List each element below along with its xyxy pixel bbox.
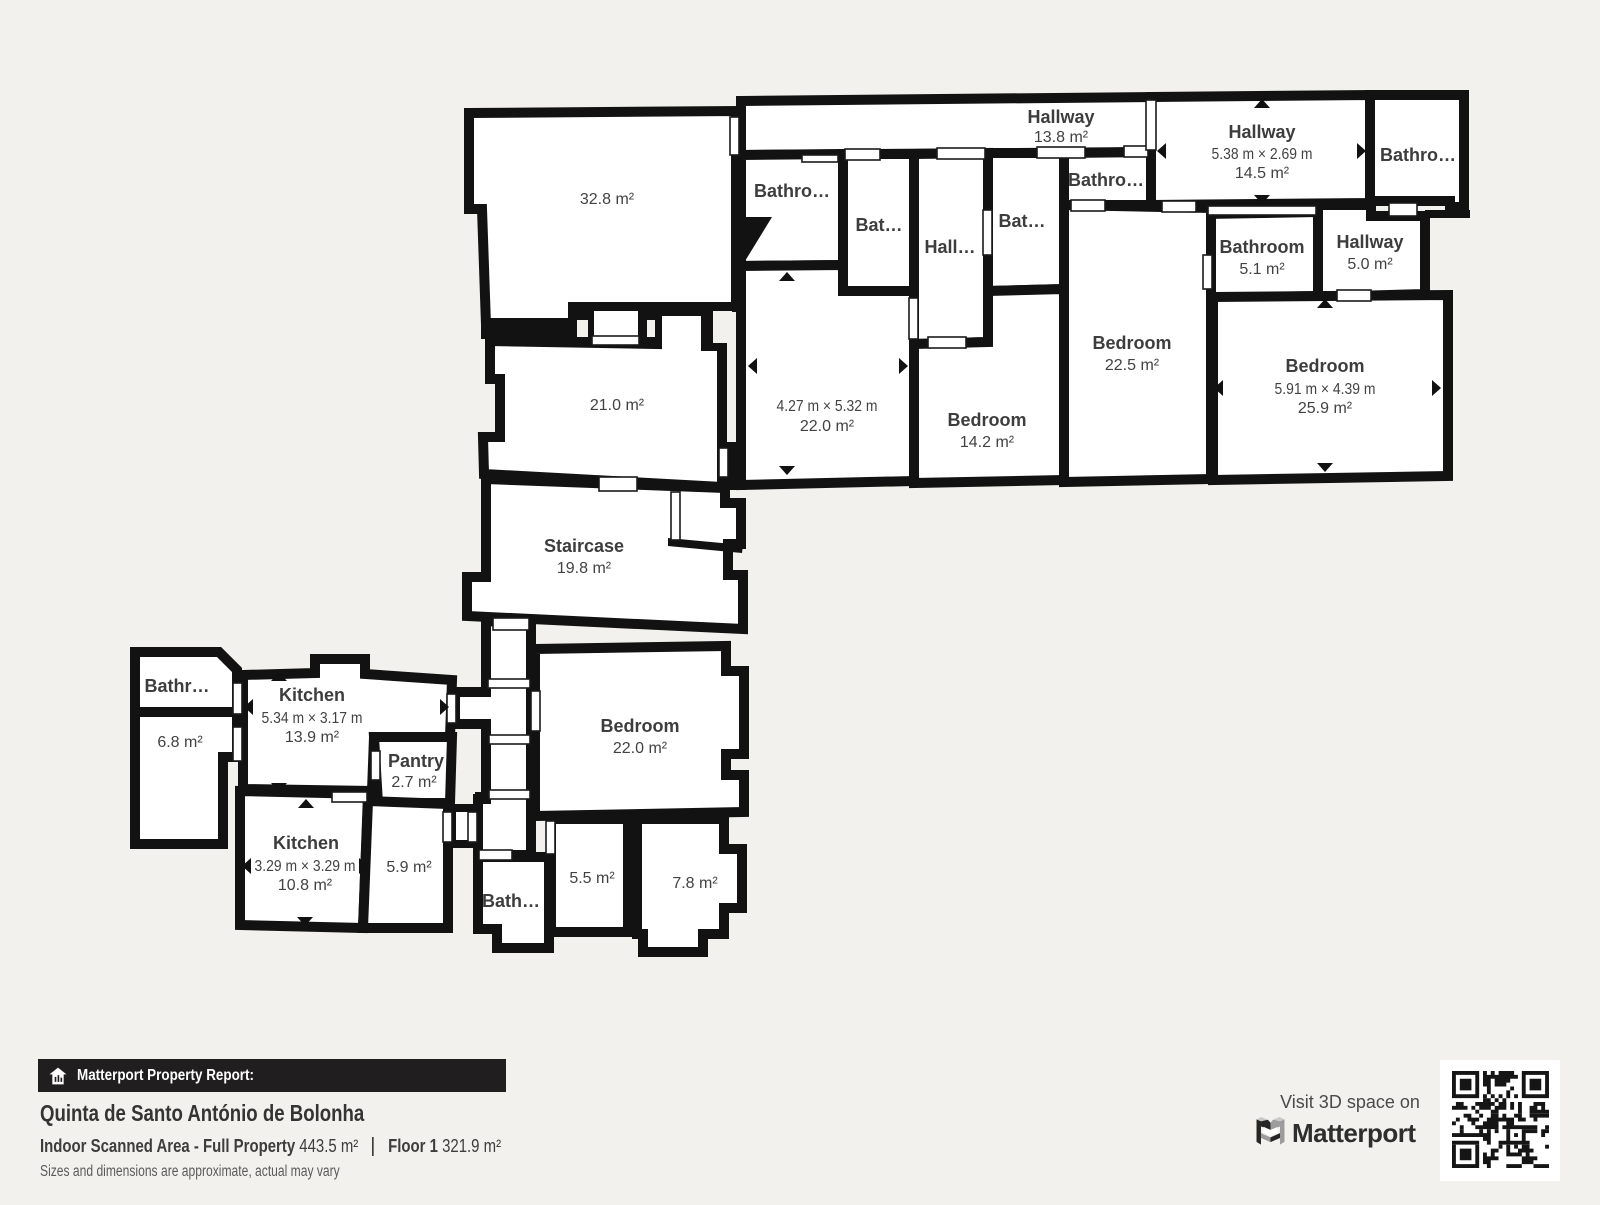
svg-text:Bathr…: Bathr…	[144, 676, 209, 696]
svg-text:Hallway: Hallway	[1228, 122, 1295, 142]
svg-text:Hallway: Hallway	[1027, 107, 1094, 127]
svg-text:Bat…: Bat…	[855, 215, 902, 235]
svg-text:21.0 m²: 21.0 m²	[590, 397, 645, 414]
svg-text:Hallway: Hallway	[1336, 232, 1403, 252]
svg-text:Staircase: Staircase	[544, 536, 624, 556]
svg-text:Bath…: Bath…	[482, 891, 540, 911]
svg-text:22.0 m²: 22.0 m²	[800, 418, 855, 435]
svg-text:5.9 m²: 5.9 m²	[386, 859, 432, 876]
svg-text:Bathro…: Bathro…	[754, 181, 830, 201]
svg-text:Bedroom: Bedroom	[1092, 333, 1171, 353]
svg-text:19.8 m²: 19.8 m²	[557, 560, 612, 577]
svg-text:Bathroom: Bathroom	[1220, 237, 1305, 257]
svg-text:5.1 m²: 5.1 m²	[1239, 261, 1285, 278]
svg-text:14.2 m²: 14.2 m²	[960, 434, 1015, 451]
svg-text:2.7 m²: 2.7 m²	[391, 774, 437, 791]
svg-text:Bedroom: Bedroom	[947, 410, 1026, 430]
svg-text:3.29 m × 3.29 m: 3.29 m × 3.29 m	[255, 858, 356, 875]
svg-text:14.5 m²: 14.5 m²	[1235, 165, 1290, 182]
svg-text:5.91 m × 4.39 m: 5.91 m × 4.39 m	[1275, 381, 1376, 398]
svg-text:Bat…: Bat…	[998, 211, 1045, 231]
svg-text:22.0 m²: 22.0 m²	[613, 740, 668, 757]
svg-text:Bathro…: Bathro…	[1068, 170, 1144, 190]
svg-text:Bedroom: Bedroom	[1285, 356, 1364, 376]
svg-text:7.8 m²: 7.8 m²	[672, 875, 718, 892]
svg-text:25.9 m²: 25.9 m²	[1298, 400, 1353, 417]
svg-text:4.27 m × 5.32 m: 4.27 m × 5.32 m	[777, 398, 878, 415]
svg-text:10.8 m²: 10.8 m²	[278, 877, 333, 894]
svg-text:32.8 m²: 32.8 m²	[580, 191, 635, 208]
svg-text:5.38 m × 2.69 m: 5.38 m × 2.69 m	[1212, 146, 1313, 163]
svg-text:Bathro…: Bathro…	[1380, 145, 1456, 165]
svg-text:5.0 m²: 5.0 m²	[1347, 256, 1393, 273]
svg-text:22.5 m²: 22.5 m²	[1105, 357, 1160, 374]
svg-text:Kitchen: Kitchen	[273, 833, 339, 853]
svg-text:6.8 m²: 6.8 m²	[157, 734, 203, 751]
svg-text:Bedroom: Bedroom	[600, 716, 679, 736]
svg-text:5.5 m²: 5.5 m²	[569, 870, 615, 887]
svg-text:Kitchen: Kitchen	[279, 685, 345, 705]
svg-text:13.8 m²: 13.8 m²	[1034, 129, 1089, 146]
svg-text:Pantry: Pantry	[388, 751, 444, 771]
svg-text:5.34 m × 3.17 m: 5.34 m × 3.17 m	[262, 710, 363, 727]
svg-text:13.9 m²: 13.9 m²	[285, 729, 340, 746]
svg-text:Hall…: Hall…	[924, 237, 975, 257]
